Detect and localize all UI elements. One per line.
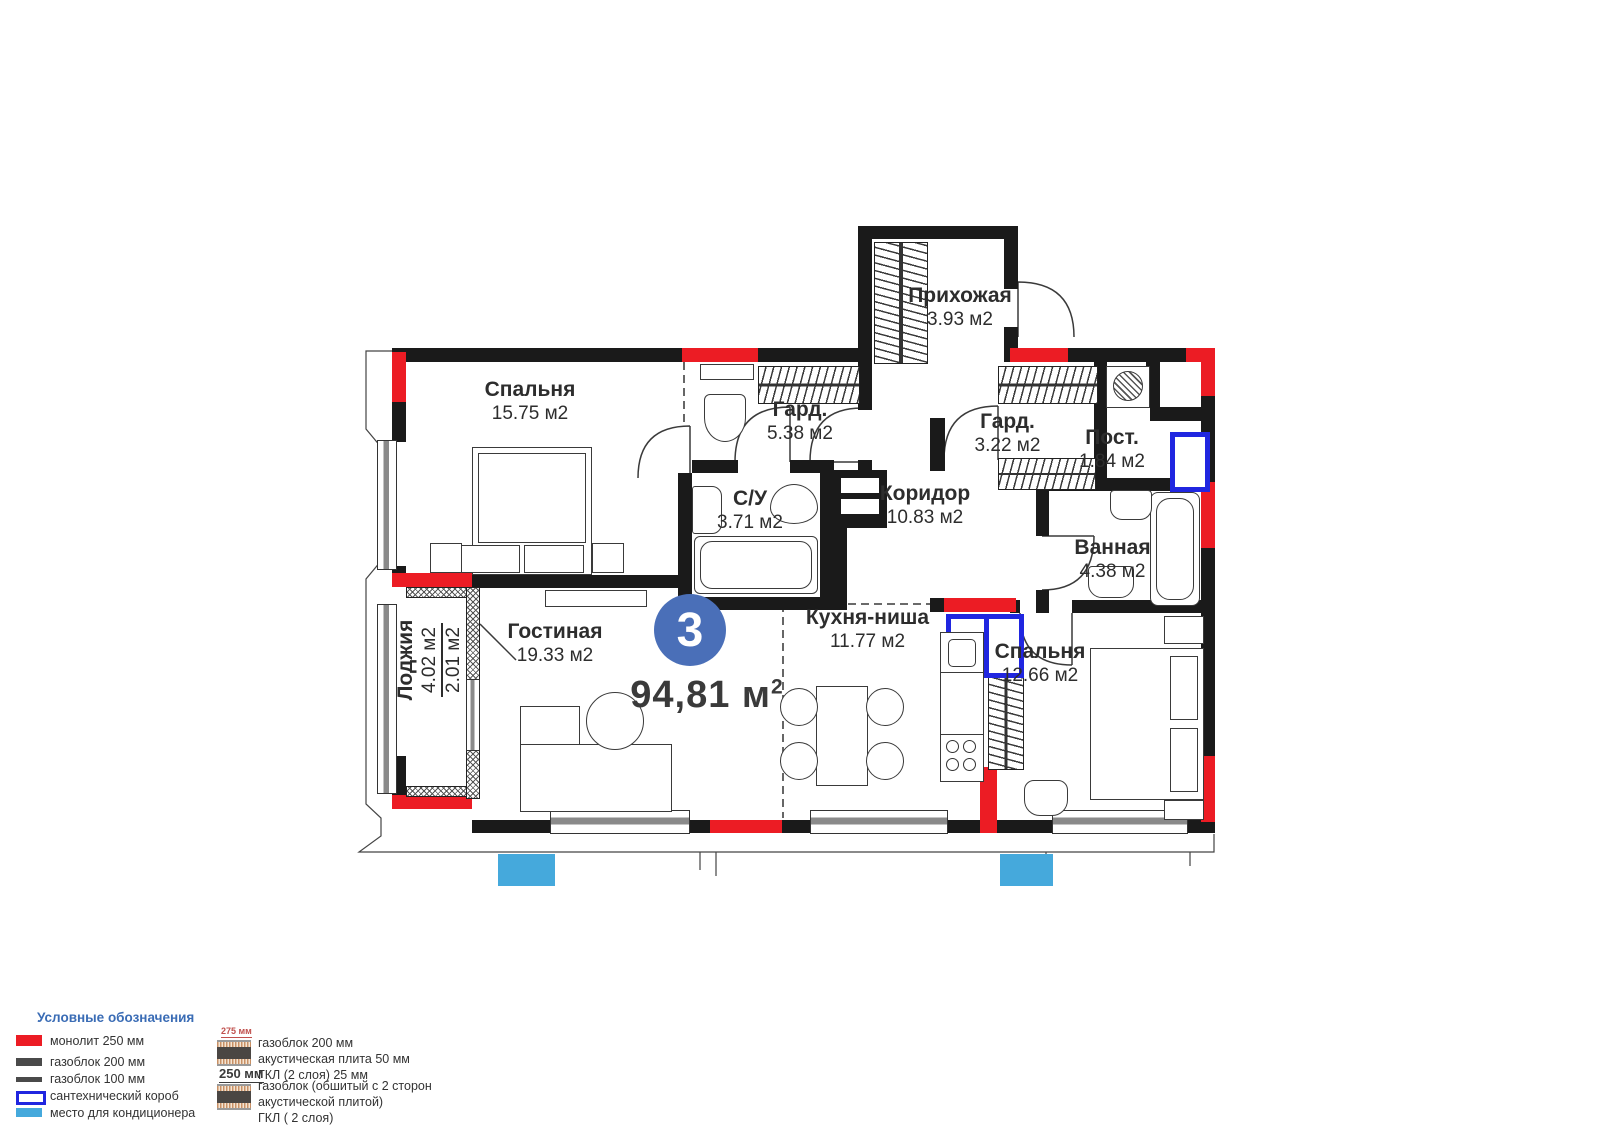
- room-label-wc: С/У 3.71 м2: [700, 487, 800, 534]
- chair: [866, 742, 904, 780]
- section-swatch-250: [217, 1084, 251, 1110]
- nightstand: [430, 543, 462, 573]
- nightstand: [1164, 616, 1204, 644]
- facade-ticks: [700, 852, 1190, 876]
- window: [377, 440, 397, 570]
- stove-burner: [963, 758, 976, 771]
- bed-cushion: [460, 545, 520, 573]
- wall: [1068, 348, 1186, 362]
- legend-swatch-monolith: [16, 1035, 42, 1046]
- bed-mattress: [478, 453, 586, 543]
- chair: [866, 688, 904, 726]
- wall: [758, 348, 862, 362]
- section-text-250: газоблок (обшитый с 2 сторон акустическо…: [258, 1078, 432, 1126]
- wall-monolith: [682, 348, 758, 362]
- wall: [472, 820, 556, 833]
- wall-monolith: [1010, 348, 1068, 362]
- pouf: [1024, 780, 1068, 816]
- room-label-living: Гостиная 19.33 м2: [480, 620, 630, 667]
- legend-swatch-plumbing-box: [16, 1091, 46, 1105]
- wall-monolith: [944, 598, 1016, 612]
- sink: [1110, 490, 1152, 520]
- wall: [1150, 407, 1202, 421]
- insulated-wall-hatch: [406, 786, 470, 797]
- wall: [858, 226, 1018, 239]
- wall: [692, 460, 738, 473]
- wardrobe-hatch: [988, 676, 1024, 770]
- legend-item-gasblock-200: газоблок 200 мм: [50, 1055, 145, 1069]
- wall-monolith: [392, 795, 472, 809]
- nightstand: [1164, 800, 1204, 820]
- stove-burner: [946, 758, 959, 771]
- room-label-loggia: Лоджия 4.02 м2 2.01 м2: [394, 580, 470, 740]
- ac-unit-place: [498, 854, 555, 886]
- insulated-wall-hatch: [466, 749, 480, 799]
- wall: [946, 820, 1056, 833]
- gasblock-layer: [217, 1047, 251, 1059]
- window: [810, 810, 948, 834]
- nightstand: [592, 543, 624, 573]
- section-text-275: газоблок 200 мм акустическая плита 50 мм…: [258, 1035, 410, 1083]
- bed-cushion: [524, 545, 584, 573]
- section-thickness-275: 275 мм: [221, 1026, 252, 1038]
- room-label-bedroom1: Спальня 15.75 м2: [455, 378, 605, 425]
- wall: [678, 473, 692, 597]
- room-label-bedroom2: Спальня 12.66 м2: [965, 640, 1115, 687]
- sofa: [520, 744, 672, 812]
- floor-plan-canvas: Спальня 15.75 м2 Гард. 5.38 м2 Прихожая …: [0, 0, 1600, 1131]
- room-label-bathroom: Ванная 4.38 м2: [1045, 536, 1180, 583]
- wall: [472, 575, 690, 588]
- bed-pillow: [1170, 728, 1198, 792]
- bed-pillow: [1170, 656, 1198, 720]
- total-area-label: 94,81 м2: [592, 674, 822, 717]
- superscript-2: 2: [771, 675, 784, 698]
- legend-swatch-gasblock-200: [16, 1058, 42, 1066]
- wall: [930, 418, 945, 471]
- sink: [700, 364, 754, 380]
- wall: [392, 348, 682, 362]
- room-label-hallway: Прихожая 3.93 м2: [885, 284, 1035, 331]
- wardrobe-hatch: [998, 366, 1098, 404]
- plumbing-box: [1170, 432, 1210, 492]
- legend-item-monolith: монолит 250 мм: [50, 1034, 144, 1048]
- window: [550, 810, 690, 834]
- room-label-corridor: Коридор 10.83 м2: [855, 482, 995, 529]
- wall-monolith: [1201, 348, 1215, 396]
- section-swatch-275: [217, 1040, 251, 1066]
- legend-swatch-ac-place: [16, 1108, 42, 1117]
- ac-unit-place: [1000, 854, 1053, 886]
- rooms-count-badge: 3: [654, 594, 726, 666]
- wall: [1004, 239, 1018, 289]
- gkl-layer: [217, 1108, 251, 1110]
- legend-swatch-gasblock-100: [16, 1077, 42, 1082]
- washer-drum: [1113, 371, 1143, 401]
- wall: [858, 226, 872, 362]
- room-label-kitchen: Кухня-ниша 11.77 м2: [795, 606, 940, 653]
- dining-table: [816, 686, 868, 786]
- stove-burner: [963, 740, 976, 753]
- room-label-wardrobe1: Гард. 5.38 м2: [740, 398, 860, 445]
- wall: [392, 402, 406, 442]
- wall: [688, 820, 710, 833]
- wall: [858, 362, 872, 410]
- legend-item-ac-place: место для кондиционера: [50, 1106, 195, 1120]
- legend-item-gasblock-100: газоблок 100 мм: [50, 1072, 145, 1086]
- chair: [780, 742, 818, 780]
- stove-burner: [946, 740, 959, 753]
- wall: [1036, 590, 1049, 613]
- stove: [940, 734, 984, 782]
- legend-item-plumbing-box: сантехнический короб: [50, 1089, 179, 1103]
- room-label-wardrobe2: Гард. 3.22 м2: [950, 410, 1065, 457]
- room-label-laundry: Пост. 1.84 м2: [1062, 426, 1162, 473]
- gasblock-layer: [217, 1091, 251, 1103]
- wall-monolith: [710, 820, 782, 833]
- wall: [820, 460, 833, 610]
- bathtub-inner: [700, 541, 812, 589]
- wall: [833, 528, 847, 610]
- wall-monolith: [392, 352, 406, 402]
- section-thickness-250: 250 мм: [219, 1066, 264, 1083]
- legend-title: Условные обозначения: [37, 1010, 194, 1025]
- door-arc-bedroom1: [638, 426, 690, 478]
- tv-stand: [545, 590, 647, 607]
